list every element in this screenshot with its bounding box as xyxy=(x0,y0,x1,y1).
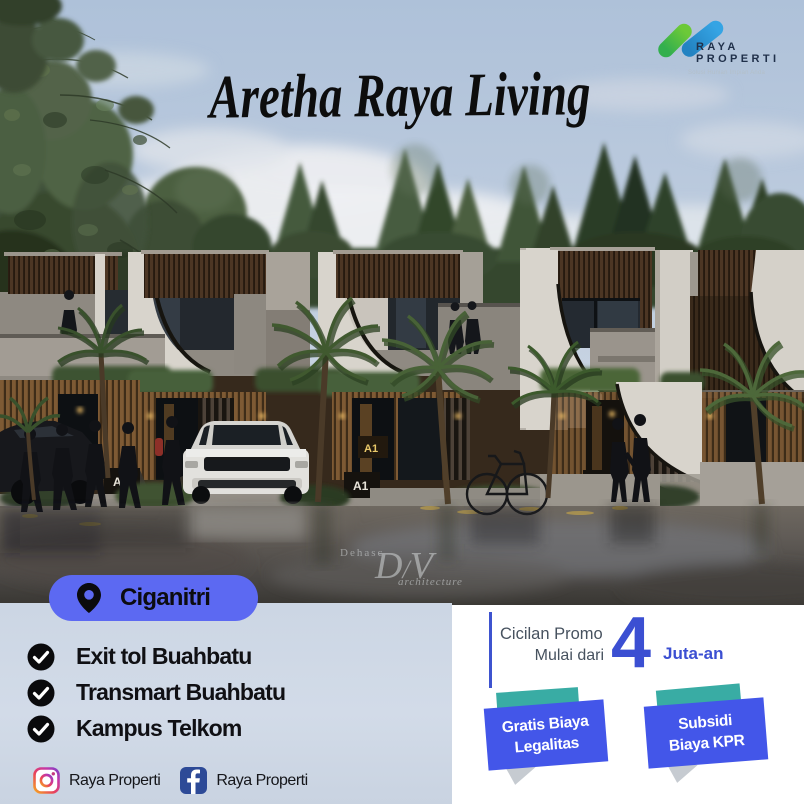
svg-text:A1: A1 xyxy=(364,443,378,455)
svg-text:architecture: architecture xyxy=(398,576,463,588)
svg-text:A1: A1 xyxy=(353,479,369,493)
